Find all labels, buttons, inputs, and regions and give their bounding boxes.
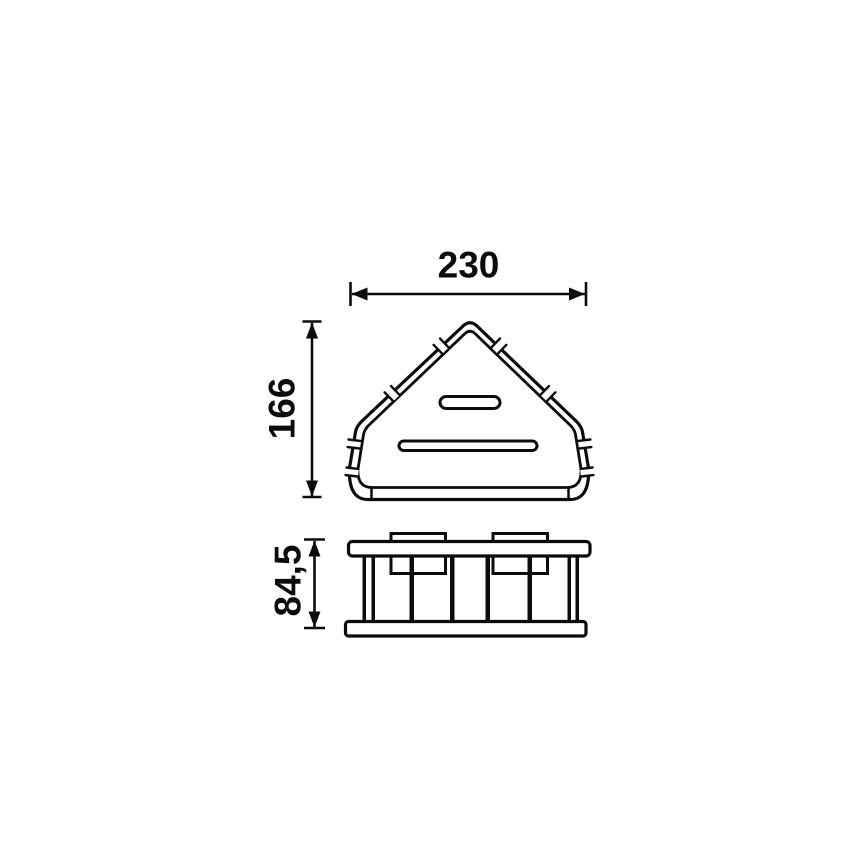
technical-drawing: 230 166 84,5: [0, 0, 868, 868]
vertical-wire: [372, 554, 376, 624]
wire-joint: [346, 467, 359, 476]
vertical-wire: [486, 554, 491, 624]
dimension-height-label: 166: [262, 378, 303, 440]
vertical-wire: [528, 554, 533, 624]
arrow-down-icon: [306, 481, 318, 497]
vertical-wire: [576, 554, 580, 624]
arrow-right-icon: [569, 288, 585, 301]
top-view-slot-large: [399, 441, 537, 451]
arrow-left-icon: [352, 288, 368, 301]
vertical-wire: [568, 554, 572, 624]
bottom-rail: [346, 622, 587, 637]
arrow-up-icon: [309, 541, 321, 557]
vertical-wire: [410, 554, 415, 624]
drawing-canvas: 230 166 84,5: [0, 0, 868, 868]
wire-joint: [581, 467, 594, 476]
wire-joint: [579, 439, 592, 448]
vertical-wire: [450, 554, 455, 624]
dimension-width: 230: [351, 245, 587, 307]
vertical-wire: [363, 554, 367, 624]
top-view: [346, 323, 594, 500]
dimension-depth-label: 84,5: [268, 544, 309, 616]
top-view-slot-small: [440, 397, 500, 409]
dimension-width-label: 230: [438, 245, 500, 286]
top-rail: [349, 542, 591, 557]
wire-joint: [348, 439, 361, 448]
front-view: [346, 534, 591, 637]
dimension-depth: 84,5: [268, 540, 326, 629]
arrow-down-icon: [309, 612, 321, 628]
dimension-height: 166: [262, 322, 322, 498]
arrow-up-icon: [306, 323, 318, 339]
